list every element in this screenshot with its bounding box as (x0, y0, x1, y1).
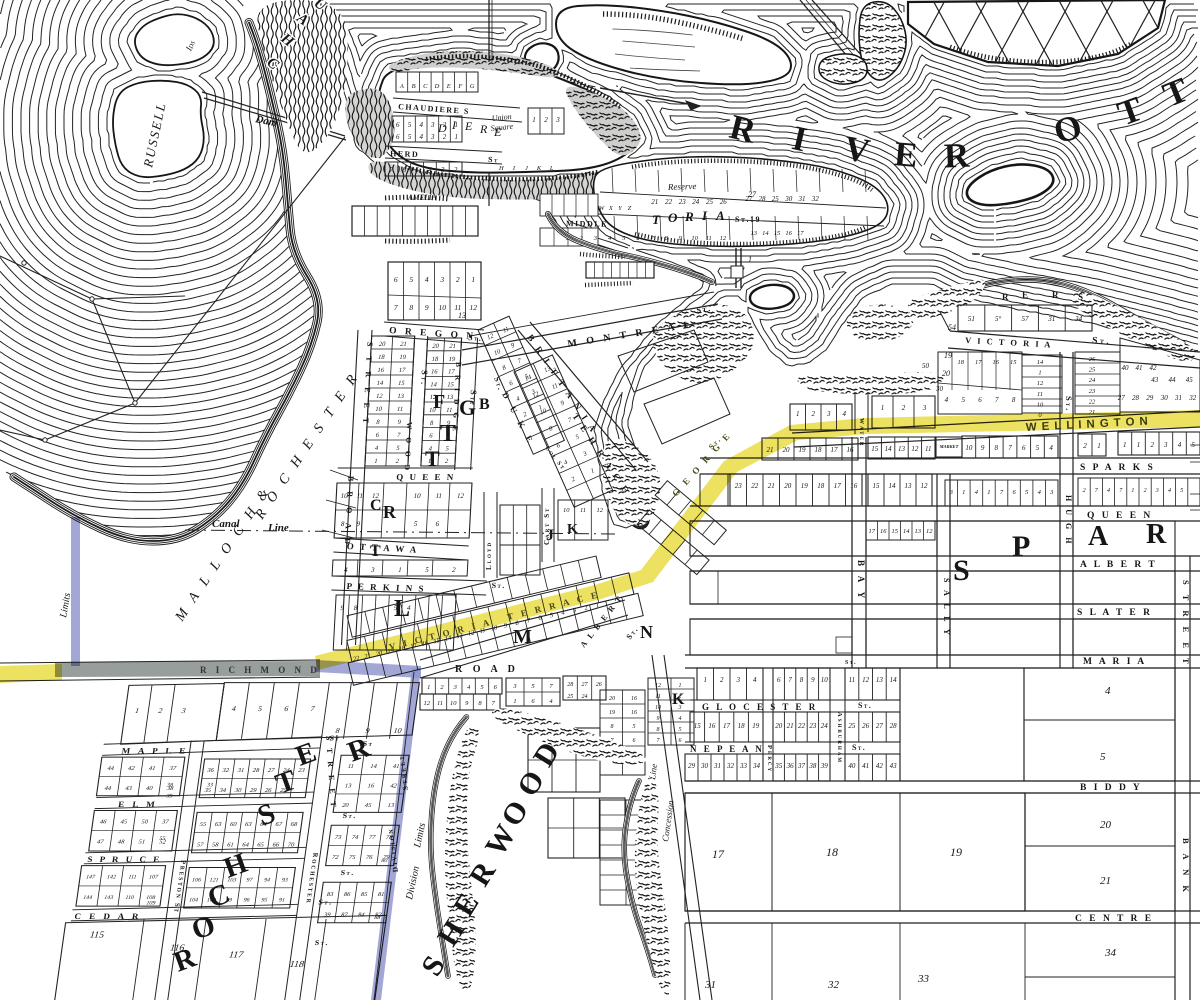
svg-text:64: 64 (242, 842, 249, 849)
svg-text:1: 1 (532, 116, 536, 124)
svg-text:26: 26 (720, 198, 728, 206)
svg-text:11: 11 (356, 492, 363, 500)
svg-text:4: 4 (428, 166, 432, 174)
svg-text:81: 81 (377, 891, 384, 898)
svg-text:12: 12 (596, 507, 603, 514)
svg-text:G L O C E S T E R: G L O C E S T E R (702, 702, 818, 712)
svg-text:4: 4 (1168, 487, 1171, 494)
svg-text:34: 34 (752, 762, 761, 770)
svg-text:H U G H: H U G H (1064, 495, 1073, 546)
svg-text:21: 21 (400, 341, 407, 348)
svg-text:13: 13 (751, 230, 758, 237)
svg-text:E L M: E L M (118, 799, 159, 809)
svg-text:3: 3 (430, 121, 435, 129)
svg-text:12: 12 (469, 303, 477, 312)
svg-text:21: 21 (1100, 875, 1111, 887)
svg-text:75: 75 (349, 854, 356, 861)
svg-text:20: 20 (1100, 819, 1112, 831)
svg-text:1: 1 (1097, 442, 1101, 450)
svg-text:R: R (1052, 290, 1060, 300)
svg-text:25: 25 (567, 694, 573, 700)
svg-text:33: 33 (917, 973, 930, 985)
svg-text:28: 28 (890, 722, 898, 730)
svg-text:6: 6 (396, 121, 400, 129)
svg-text:30: 30 (1160, 394, 1169, 402)
svg-text:S P R U C E: S P R U C E (87, 854, 163, 864)
svg-text:27: 27 (876, 722, 884, 730)
svg-text:N E P E A N: N E P E A N (690, 744, 764, 754)
svg-text:2: 2 (456, 275, 460, 284)
svg-text:36: 36 (786, 762, 795, 770)
svg-text:27: 27 (582, 682, 589, 688)
svg-text:E: E (464, 119, 474, 133)
svg-text:42: 42 (390, 783, 397, 790)
svg-text:15: 15 (694, 722, 702, 730)
svg-text:M A R I A: M A R I A (1083, 657, 1147, 667)
svg-text:22: 22 (665, 198, 673, 206)
svg-text:7: 7 (1008, 444, 1012, 452)
svg-text:23: 23 (679, 198, 687, 206)
svg-text:44: 44 (104, 785, 111, 792)
svg-text:12: 12 (376, 393, 384, 400)
svg-text:A: A (399, 83, 404, 90)
svg-text:17: 17 (975, 359, 982, 366)
svg-text:5: 5 (633, 724, 636, 730)
svg-text:5: 5 (679, 727, 682, 733)
svg-text:3: 3 (593, 235, 598, 242)
svg-text:A: A (715, 208, 725, 223)
svg-text:51: 51 (138, 839, 145, 846)
svg-text:31: 31 (1174, 394, 1182, 402)
svg-text:15: 15 (892, 528, 899, 535)
svg-text:18: 18 (738, 722, 746, 730)
svg-text:20: 20 (775, 722, 783, 730)
svg-text:1: 1 (796, 410, 800, 418)
svg-text:16: 16 (631, 696, 637, 702)
svg-text:Q U E E N: Q U E E N (1087, 511, 1153, 521)
svg-text:25: 25 (1089, 367, 1096, 374)
svg-text:11: 11 (1037, 391, 1043, 398)
svg-text:2: 2 (454, 166, 458, 174)
svg-text:40: 40 (1122, 364, 1130, 372)
svg-text:C: C (423, 83, 428, 90)
svg-text:93: 93 (281, 878, 288, 884)
svg-text:9: 9 (981, 444, 985, 452)
svg-text:11: 11 (849, 676, 855, 684)
svg-text:20: 20 (942, 369, 950, 378)
svg-text:R: R (943, 136, 970, 176)
svg-text:23: 23 (1089, 388, 1096, 395)
svg-text:2: 2 (811, 410, 815, 418)
svg-text:42: 42 (128, 765, 135, 772)
svg-text:6: 6 (978, 396, 982, 404)
svg-text:29: 29 (688, 762, 696, 770)
svg-text:3: 3 (735, 676, 740, 684)
svg-text:42: 42 (1150, 364, 1158, 372)
svg-text:B I D D Y: B I D D Y (1080, 783, 1142, 793)
svg-text:A: A (1088, 521, 1109, 552)
svg-text:34: 34 (218, 787, 226, 794)
svg-text:84: 84 (357, 912, 364, 919)
svg-text:12: 12 (720, 235, 727, 242)
svg-text:22: 22 (1089, 398, 1096, 405)
svg-text:O: O (668, 210, 678, 225)
svg-text:19: 19 (799, 446, 807, 454)
svg-text:15: 15 (1010, 359, 1017, 366)
svg-text:26: 26 (1089, 356, 1096, 363)
svg-text:2: 2 (679, 694, 682, 700)
svg-text:PERCY: PERCY (766, 745, 773, 773)
svg-text:29: 29 (1146, 394, 1154, 402)
svg-text:MIDDLE: MIDDLE (566, 219, 608, 229)
svg-text:13: 13 (905, 482, 913, 490)
svg-text:3: 3 (1155, 488, 1159, 494)
svg-text:3: 3 (1163, 441, 1168, 449)
svg-text:G: G (470, 83, 475, 90)
svg-text:P: P (1012, 530, 1030, 563)
svg-text:C: C (370, 497, 382, 514)
svg-text:20: 20 (432, 343, 440, 350)
svg-text:74: 74 (351, 834, 358, 841)
svg-text:10: 10 (393, 727, 402, 736)
svg-text:32: 32 (827, 979, 840, 991)
svg-text:2: 2 (1150, 441, 1154, 449)
svg-text:12: 12 (655, 683, 661, 689)
svg-text:63: 63 (214, 821, 221, 828)
svg-text:16: 16 (431, 369, 439, 376)
svg-text:B: B (412, 83, 416, 90)
svg-text:10: 10 (438, 303, 446, 312)
svg-text:2: 2 (1083, 488, 1086, 494)
svg-text:18: 18 (958, 359, 965, 366)
svg-text:3: 3 (678, 705, 682, 711)
svg-text:14: 14 (762, 230, 769, 237)
svg-text:9: 9 (811, 676, 815, 684)
svg-text:B A Y: B A Y (856, 560, 866, 602)
svg-text:37: 37 (797, 762, 806, 770)
svg-text:2: 2 (1144, 488, 1147, 494)
svg-text:W: W (599, 205, 605, 212)
svg-text:28: 28 (759, 195, 767, 203)
svg-text:18: 18 (378, 354, 386, 361)
svg-text:6: 6 (394, 275, 398, 284)
svg-text:S L A T E R: S L A T E R (1077, 608, 1152, 618)
svg-text:23: 23 (809, 722, 817, 730)
svg-text:9: 9 (425, 303, 429, 312)
svg-text:31: 31 (798, 195, 806, 203)
svg-text:15: 15 (871, 445, 879, 453)
svg-text:8: 8 (995, 444, 999, 452)
svg-text:4: 4 (419, 121, 423, 129)
svg-text:21: 21 (651, 198, 658, 206)
svg-text:6: 6 (402, 166, 406, 174)
svg-text:ASHBURHAM: ASHBURHAM (836, 712, 843, 764)
svg-text:7: 7 (995, 396, 999, 404)
svg-text:I: I (701, 208, 708, 223)
svg-text:1: 1 (748, 255, 752, 264)
svg-text:115: 115 (89, 930, 105, 940)
svg-text:3: 3 (453, 684, 458, 691)
svg-text:110: 110 (125, 895, 134, 901)
svg-text:26: 26 (596, 682, 602, 688)
svg-text:17: 17 (834, 482, 842, 490)
svg-text:3: 3 (826, 410, 831, 418)
svg-text:51: 51 (968, 315, 975, 323)
svg-text:10: 10 (691, 235, 698, 242)
svg-text:45: 45 (120, 819, 127, 826)
svg-text:1: 1 (1123, 441, 1127, 449)
svg-text:K: K (567, 522, 578, 537)
svg-text:41: 41 (1136, 364, 1143, 372)
svg-text:4: 4 (842, 410, 846, 418)
svg-text:5: 5 (408, 133, 412, 141)
svg-text:39: 39 (165, 794, 173, 800)
svg-text:20: 20 (609, 696, 615, 702)
svg-text:7: 7 (394, 303, 398, 312)
svg-text:16: 16 (880, 528, 887, 535)
svg-text:11: 11 (706, 235, 712, 242)
svg-text:104: 104 (189, 897, 199, 904)
svg-text:31: 31 (1047, 315, 1055, 323)
svg-text:1: 1 (513, 698, 516, 705)
svg-text:21: 21 (768, 482, 775, 490)
svg-text:L: L (549, 165, 554, 172)
svg-text:R: R (479, 122, 489, 136)
svg-text:A L B E R T: A L B E R T (1080, 560, 1157, 570)
svg-text:39: 39 (820, 762, 829, 770)
svg-text:17: 17 (869, 528, 876, 535)
svg-text:35: 35 (774, 762, 783, 770)
svg-text:10: 10 (450, 700, 457, 707)
svg-text:109: 109 (146, 901, 156, 907)
svg-text:30: 30 (700, 762, 709, 770)
svg-text:6: 6 (396, 133, 400, 141)
svg-text:50: 50 (922, 362, 930, 370)
svg-text:18: 18 (432, 356, 440, 363)
svg-text:41: 41 (862, 762, 869, 770)
svg-text:8: 8 (409, 303, 413, 312)
svg-text:14: 14 (370, 763, 377, 770)
svg-text:Line: Line (267, 522, 289, 534)
svg-text:10: 10 (563, 507, 570, 514)
svg-text:63: 63 (245, 821, 252, 828)
svg-text:4: 4 (1105, 685, 1111, 697)
svg-text:3: 3 (430, 133, 435, 141)
svg-text:10: 10 (413, 492, 421, 500)
svg-text:32: 32 (221, 767, 229, 774)
svg-text:22: 22 (751, 482, 759, 490)
svg-text:23: 23 (735, 482, 743, 490)
svg-text:144: 144 (83, 894, 93, 901)
svg-text:R: R (383, 502, 397, 522)
svg-text:45: 45 (364, 802, 371, 809)
svg-text:1: 1 (398, 566, 402, 574)
svg-text:ST.19: ST.19 (735, 215, 761, 224)
svg-text:7: 7 (788, 676, 792, 684)
svg-text:10: 10 (375, 406, 383, 413)
svg-text:11: 11 (925, 445, 931, 453)
svg-text:12: 12 (921, 482, 929, 490)
svg-text:143: 143 (104, 894, 114, 901)
svg-text:41: 41 (393, 763, 400, 770)
svg-text:4: 4 (425, 275, 429, 284)
svg-text:14: 14 (889, 482, 897, 490)
svg-text:R I C H M O N D: R I C H M O N D (200, 665, 320, 675)
svg-text:24: 24 (692, 198, 700, 206)
svg-text:4: 4 (419, 133, 423, 141)
svg-text:91: 91 (279, 898, 286, 904)
svg-text:94: 94 (264, 877, 271, 884)
svg-text:8: 8 (611, 724, 614, 730)
svg-text:11: 11 (655, 694, 661, 700)
svg-text:T: T (370, 543, 381, 560)
svg-text:20: 20 (379, 341, 387, 348)
svg-text:R O A D: R O A D (455, 664, 519, 675)
svg-text:19: 19 (944, 351, 952, 360)
svg-text:13: 13 (915, 528, 922, 535)
svg-text:16: 16 (847, 446, 855, 454)
svg-text:106: 106 (191, 878, 201, 884)
svg-text:3: 3 (1049, 489, 1054, 496)
svg-text:11: 11 (435, 492, 442, 500)
svg-text:16: 16 (377, 367, 385, 374)
svg-text:41: 41 (148, 765, 155, 772)
svg-text:17: 17 (797, 230, 804, 237)
svg-text:9: 9 (657, 716, 660, 722)
svg-text:1: 1 (454, 133, 458, 141)
svg-text:S A L L Y: S A L L Y (942, 578, 951, 638)
svg-text:T: T (425, 446, 440, 471)
svg-text:13: 13 (397, 393, 405, 400)
svg-text:1: 1 (881, 404, 885, 412)
svg-text:19: 19 (399, 354, 407, 361)
svg-text:S T R E E T: S T R E E T (1181, 580, 1191, 668)
svg-text:27: 27 (1118, 394, 1126, 402)
svg-text:12: 12 (926, 528, 933, 535)
svg-text:6: 6 (633, 738, 636, 744)
svg-text:1: 1 (1137, 441, 1141, 449)
svg-text:5: 5 (1100, 751, 1106, 763)
svg-text:5: 5 (415, 166, 419, 174)
svg-text:11: 11 (580, 507, 586, 514)
svg-text:27: 27 (748, 190, 757, 199)
svg-text:Z: Z (628, 205, 632, 212)
svg-text:44: 44 (1169, 376, 1177, 384)
svg-text:HERD: HERD (390, 149, 419, 159)
svg-text:33: 33 (205, 783, 213, 789)
svg-text:65: 65 (257, 842, 264, 849)
svg-text:2: 2 (1083, 442, 1087, 450)
svg-text:22: 22 (798, 722, 806, 730)
svg-text:3: 3 (922, 404, 927, 412)
svg-text:32: 32 (1188, 394, 1197, 402)
svg-text:2: 2 (902, 404, 906, 412)
svg-text:14: 14 (377, 380, 385, 387)
svg-text:1: 1 (1131, 488, 1134, 494)
svg-text:S: S (1078, 292, 1085, 302)
svg-text:1: 1 (703, 676, 707, 684)
svg-text:1: 1 (962, 489, 965, 496)
svg-text:13: 13 (898, 445, 906, 453)
svg-text:4: 4 (679, 715, 682, 722)
svg-text:1: 1 (987, 489, 990, 496)
svg-text:E: E (893, 134, 920, 175)
svg-text:R: R (1146, 519, 1167, 550)
svg-text:C E N T R E: C E N T R E (1075, 914, 1154, 924)
svg-text:17: 17 (399, 367, 407, 374)
svg-text:6: 6 (679, 738, 682, 744)
svg-text:117: 117 (228, 950, 245, 960)
svg-text:12: 12 (1037, 380, 1044, 387)
svg-text:4: 4 (1049, 444, 1053, 452)
svg-text:B: B (479, 396, 490, 413)
svg-text:8: 8 (657, 727, 660, 733)
svg-text:20: 20 (784, 482, 792, 490)
svg-text:M A P L E: M A P L E (121, 746, 189, 756)
svg-text:15: 15 (398, 380, 406, 387)
svg-text:57: 57 (1022, 315, 1030, 323)
svg-text:8: 8 (800, 676, 804, 684)
svg-text:15: 15 (873, 482, 881, 490)
svg-text:85: 85 (360, 891, 367, 898)
svg-text:F: F (433, 391, 445, 413)
svg-text:Reserve: Reserve (667, 181, 697, 192)
svg-text:14: 14 (890, 676, 898, 684)
svg-text:D: D (437, 121, 449, 135)
svg-text:16: 16 (993, 359, 1000, 366)
svg-text:11: 11 (446, 407, 452, 414)
svg-text:72: 72 (332, 854, 339, 861)
svg-text:17: 17 (831, 446, 839, 454)
svg-text:11: 11 (397, 406, 403, 413)
svg-text:26: 26 (862, 722, 870, 730)
svg-text:12: 12 (457, 492, 465, 500)
svg-text:142: 142 (107, 874, 117, 881)
svg-text:18: 18 (817, 482, 825, 490)
svg-text:55: 55 (159, 836, 166, 842)
svg-text:54: 54 (948, 323, 956, 332)
svg-text:16: 16 (708, 722, 716, 730)
svg-text:11: 11 (437, 700, 443, 707)
svg-text:T: T (440, 421, 456, 447)
svg-text:T: T (652, 212, 661, 227)
svg-text:7: 7 (390, 166, 394, 174)
svg-text:N: N (640, 622, 653, 642)
svg-text:13: 13 (458, 311, 466, 320)
svg-text:D: D (434, 83, 440, 90)
svg-text:G: G (459, 395, 476, 420)
svg-text:33: 33 (739, 762, 748, 770)
svg-text:MARKET: MARKET (939, 444, 959, 449)
svg-text:3: 3 (440, 166, 445, 174)
svg-text:5: 5 (408, 121, 412, 129)
svg-text:30: 30 (784, 195, 793, 203)
svg-text:13: 13 (387, 802, 394, 809)
svg-text:4: 4 (1107, 487, 1110, 494)
svg-text:R: R (684, 209, 694, 224)
svg-text:AMELIA: AMELIA (407, 193, 437, 202)
svg-text:5: 5 (1036, 444, 1040, 452)
svg-text:25: 25 (706, 198, 714, 206)
svg-text:E: E (446, 83, 451, 90)
svg-text:19: 19 (609, 710, 615, 716)
svg-text:14: 14 (430, 381, 438, 388)
svg-text:5: 5 (1180, 488, 1183, 494)
svg-text:2: 2 (544, 116, 548, 124)
svg-text:21: 21 (787, 722, 794, 730)
svg-text:42: 42 (876, 762, 884, 770)
svg-text:28: 28 (1132, 394, 1140, 402)
